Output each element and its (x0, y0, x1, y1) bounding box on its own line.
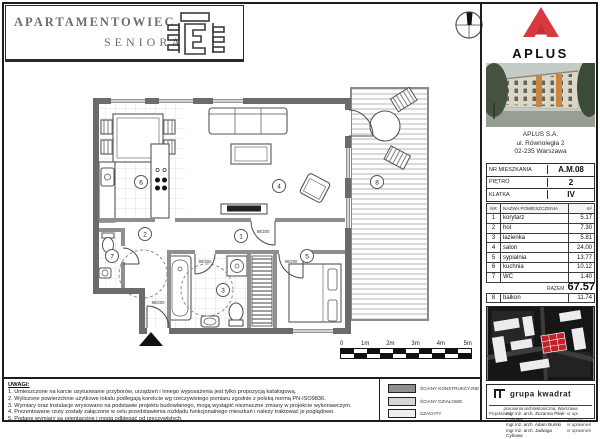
legend-label: ŚCIANY DZIAŁOWE (420, 399, 462, 404)
note-line: 3. Wymiary oraz instalacje wrysowano na … (8, 403, 377, 410)
svg-text:2: 2 (143, 231, 147, 238)
cell-name: salon (501, 245, 568, 251)
salon-furniture (209, 108, 331, 214)
scale-tick: 3m (410, 341, 422, 347)
svg-text:90/200: 90/200 (152, 300, 165, 305)
designed-label: Projektował (489, 411, 506, 422)
legend-item: SZACHTY (388, 409, 480, 418)
note-line: 5. Podane wymiary są orientacyjne i mogą… (8, 416, 377, 423)
cell-area: 10.12 (568, 263, 594, 272)
svg-text:1: 1 (239, 233, 243, 240)
cell-name: korytarz (501, 215, 568, 221)
designer-license: nr uprawnień (567, 428, 592, 439)
total-label: RAZEM (547, 286, 565, 292)
room-marker-hol: 2 (139, 228, 152, 241)
note-line: 4. Prezentowane rzuty zostały załączone … (8, 409, 377, 416)
unit-label: PIĘTRO (487, 179, 547, 185)
svg-text:90/200: 90/200 (257, 229, 270, 234)
cell-area: 7.30 (568, 224, 594, 233)
rooms-table-header: NR NAZWA POMIESZCZENIA m² (486, 203, 595, 214)
scale-bar-bottom (340, 353, 472, 359)
cell-nr: 3 (487, 234, 501, 243)
cell-area: 24.00 (568, 243, 594, 252)
project-header: APARTAMENTOWIEC SENIORA (5, 5, 244, 62)
cell-area: 11.74 (568, 294, 594, 302)
unit-value: A.M.08 (547, 165, 594, 174)
unit-row: KLATKA IV (487, 188, 594, 201)
cell-area: 5.81 (568, 234, 594, 243)
pillow (328, 300, 337, 321)
svg-text:3: 3 (221, 287, 225, 294)
shaft (252, 256, 272, 326)
scale-tick: 4m (435, 341, 447, 347)
col-name: NAZWA POMIESZCZENIA (501, 206, 568, 211)
designer-row: Projektował mgr inż. arch. Zuzanna Piłak… (489, 411, 592, 422)
legend-item: ŚCIANY KONSTRUKCYJNE (388, 384, 480, 393)
svg-text:7: 7 (110, 253, 114, 260)
balcony (351, 87, 428, 320)
notes-heading: UWAGI: (8, 382, 377, 388)
legend-swatch-shaft (388, 409, 416, 418)
floor-plan: 90/200 90/200 90/200 90/200 1 2 3 4 5 6 … (55, 78, 475, 350)
table-row: 2hol7.30 (486, 224, 595, 234)
svg-text:90/200: 90/200 (199, 259, 212, 264)
legend-swatch-partition (388, 397, 416, 406)
table-row: 3łazienka5.81 (486, 234, 595, 244)
cell-nr: 8 (487, 294, 501, 302)
unit-row: NR MIESZKANIA A.M.08 (487, 164, 594, 176)
sidebar-divider (480, 2, 482, 422)
cell-nr: 6 (487, 263, 501, 272)
cell-name: łazienka (501, 235, 568, 241)
unit-value: 2 (547, 178, 594, 187)
site-plan-map (486, 306, 595, 381)
designer-license: nr upr. 384/010 (567, 411, 592, 422)
designer-name: mgr inż. arch. Zuzanna Piłak-Cybowa (506, 411, 567, 422)
room-marker-sypialnia: 5 (301, 250, 314, 263)
tv (227, 206, 261, 212)
cell-nr: 2 (487, 224, 501, 233)
unit-label: NR MIESZKANIA (487, 167, 547, 173)
scale-bar: 0 1m 2m 3m 4m 5m (340, 341, 472, 359)
room-marker-balkon: 8 (371, 176, 384, 189)
entrance-marker (139, 332, 163, 346)
svg-text:90/200: 90/200 (285, 259, 298, 264)
svg-text:6: 6 (139, 179, 143, 186)
cell-area: 13.77 (568, 253, 594, 262)
scale-labels: 0 1m 2m 3m 4m 5m (340, 341, 472, 347)
scale-tick: 0 (340, 341, 346, 347)
signature-block: grupa kwadrat pracownia architektoniczna… (486, 384, 595, 419)
brand-name: APLUS (484, 46, 597, 61)
col-area: m² (568, 204, 594, 213)
scale-tick: 1m (359, 341, 371, 347)
unit-info-table: NR MIESZKANIA A.M.08 PIĘTRO 2 KLATKA IV (486, 163, 595, 202)
svg-text:4: 4 (277, 183, 281, 190)
address-line: APLUS S.A. (484, 131, 597, 140)
wall-legend: ŚCIANY KONSTRUKCYJNE ŚCIANY DZIAŁOWE SZA… (379, 377, 480, 420)
legend-label: ŚCIANY KONSTRUKCYJNE (420, 386, 479, 391)
designed-label-spacer (489, 428, 506, 439)
svg-text:8: 8 (375, 179, 379, 186)
company-address: APLUS S.A. ul. Równoległa 2 02-235 Warsz… (484, 131, 597, 157)
table-row: 1korytarz5.17 (486, 214, 595, 224)
sofa (209, 108, 287, 134)
cell-name: sypialnia (501, 255, 568, 261)
notes-box: UWAGI: 1. Umieszczone na karcie usytuowa… (4, 377, 379, 420)
designer-name: mgr inż. arch. Jadwiga Cybowa (506, 428, 567, 439)
note-line: 1. Umieszczone na karcie usytuowanie prz… (8, 389, 377, 396)
cell-name: hol (501, 225, 568, 231)
designer-row: mgr inż. arch. Jadwiga Cybowa nr uprawni… (489, 428, 592, 439)
balcony-table (370, 111, 400, 141)
brand-block: APLUS (484, 6, 597, 61)
total-value: 67.57 (567, 281, 595, 293)
cell-nr: 5 (487, 253, 501, 262)
room-marker-salon: 4 (273, 180, 286, 193)
svg-text:grupa kwadrat: grupa kwadrat (510, 390, 571, 399)
pillow (328, 269, 337, 290)
studio-logo: grupa kwadrat (489, 388, 593, 399)
highlighted-building (541, 332, 567, 353)
bedroom-furniture (289, 264, 341, 322)
cell-name: balkon (501, 295, 568, 301)
cell-nr: 1 (487, 214, 501, 223)
note-line: 2. Wyliczone powierzchnie użytkowe lokal… (8, 396, 377, 403)
legend-label: SZACHTY (420, 411, 441, 416)
address-line: 02-235 Warszawa (484, 148, 597, 157)
cell-area: 5.17 (568, 214, 594, 223)
unit-row: PIĘTRO 2 (487, 176, 594, 189)
balcony-row: 8 balkon 11.74 (486, 293, 595, 303)
col-nr: NR (487, 204, 501, 213)
cell-name: kuchnia (501, 264, 568, 270)
svg-text:5: 5 (305, 253, 309, 260)
unit-label: KLATKA (487, 192, 547, 198)
rooms-table: NR NAZWA POMIESZCZENIA m² 1korytarz5.17 … (486, 203, 595, 283)
building-photo (486, 63, 595, 127)
room-marker-korytarz: 1 (235, 230, 248, 243)
table-row: 5sypialnia13.77 (486, 253, 595, 263)
legend-swatch-structural (388, 384, 416, 393)
room-marker-kuchnia: 6 (135, 176, 148, 189)
table-row: 4salon24.00 (486, 243, 595, 253)
toilet (229, 303, 243, 321)
scale-tick: 5m (460, 341, 472, 347)
table-row: 6kuchnia10.12 (486, 263, 595, 273)
aplus-logo-icon (521, 6, 561, 40)
legend-item: ŚCIANY DZIAŁOWE (388, 397, 480, 406)
unit-value: IV (547, 190, 594, 199)
scale-tick: 2m (384, 341, 396, 347)
room-marker-wc: 7 (106, 250, 119, 263)
address-line: ul. Równoległa 2 (484, 140, 597, 149)
room-marker-lazienka: 3 (217, 284, 230, 297)
cell-nr: 4 (487, 243, 501, 252)
building-outline-logo-icon (151, 10, 239, 57)
